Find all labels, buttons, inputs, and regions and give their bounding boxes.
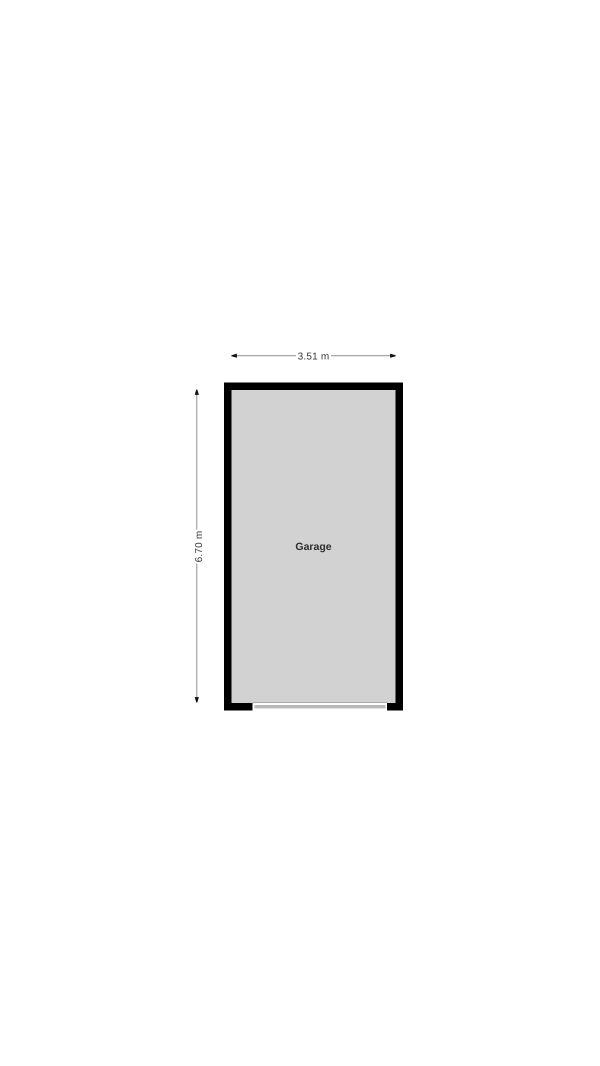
svg-text:3.51 m: 3.51 m [298,352,330,363]
svg-text:Garage: Garage [295,541,331,553]
svg-text:6.70 m: 6.70 m [194,531,205,563]
